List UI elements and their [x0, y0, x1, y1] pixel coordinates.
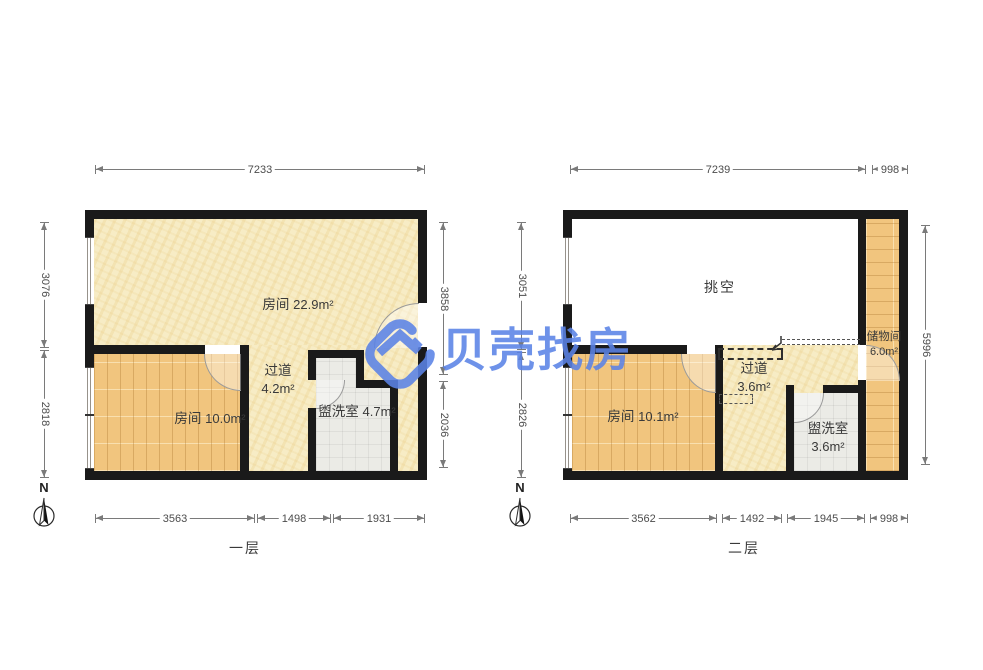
- room-area: 4.2m²: [261, 381, 294, 396]
- dimension: 2818: [39, 350, 50, 478]
- dimension: 1492: [722, 513, 782, 524]
- dimension: 3563: [95, 513, 255, 524]
- dimension-value: 3076: [39, 270, 51, 300]
- dimension-value: 1492: [737, 513, 767, 525]
- window: [563, 237, 572, 305]
- room-label-corridor: 过道 4.2m²: [249, 362, 307, 397]
- room-label-bedroom-2: 房间 10.0m²: [170, 410, 250, 428]
- dimension: 1498: [257, 513, 331, 524]
- wall-segment: [563, 471, 908, 480]
- dimension-value: 1498: [279, 513, 309, 525]
- room-name: 房间: [262, 297, 289, 312]
- wall-segment: [418, 347, 427, 471]
- room-label-bedroom: 房间 10.1m²: [603, 408, 683, 426]
- room-name: 盥洗室: [808, 421, 849, 436]
- wall-segment: [858, 219, 866, 345]
- window-mullion: [85, 414, 94, 416]
- wall-segment: [823, 385, 866, 393]
- dimension-value: 998: [877, 513, 901, 525]
- opening-dashed-box: [719, 394, 753, 404]
- wall-segment: [308, 408, 316, 471]
- room-label-corridor: 过道 3.6m²: [724, 360, 784, 395]
- room-label-bedroom-main: 房间 22.9m²: [258, 296, 338, 314]
- room-label-washroom: 盥洗室 4.7m²: [318, 403, 396, 421]
- dimension-value: 3562: [628, 513, 658, 525]
- dimension-value: 7233: [245, 164, 275, 176]
- dimension: 3858: [438, 222, 449, 375]
- dimension: 2826: [516, 352, 527, 478]
- dimension: 7239: [570, 164, 866, 175]
- dimension: 7233: [95, 164, 425, 175]
- stair-direction-arrow-icon: [768, 334, 784, 356]
- dimension-value: 5996: [920, 330, 932, 360]
- north-compass-icon: N: [27, 481, 61, 536]
- room-label-storage: 储物间 6.0m²: [855, 330, 913, 360]
- room-name: 过道: [741, 361, 768, 376]
- room-label-void: 挑空: [690, 278, 750, 296]
- dimension-value: 3051: [516, 271, 528, 301]
- room-label-washroom: 盥洗室 3.6m²: [790, 420, 866, 455]
- dimension-value: 3563: [160, 513, 190, 525]
- dimension: 998: [870, 513, 908, 524]
- north-label: N: [503, 481, 537, 494]
- window: [563, 367, 572, 469]
- dimension: 998: [872, 164, 908, 175]
- room-area: 4.7m²: [363, 404, 396, 419]
- dimension-value: 1931: [364, 513, 394, 525]
- floor-title: 二层: [712, 538, 776, 558]
- floorplan-image: 房间 22.9m² 房间 10.0m² 过道 4.2m² 盥洗室 4.7m² 7…: [0, 0, 983, 670]
- dimension-value: 3858: [438, 283, 450, 313]
- f1-main-room-floor: [94, 219, 418, 345]
- wall-segment: [563, 210, 908, 219]
- wall-segment: [240, 345, 249, 471]
- room-area: 10.0m²: [205, 411, 245, 426]
- room-name: 挑空: [704, 279, 736, 295]
- wall-segment: [715, 354, 723, 471]
- window: [85, 367, 94, 469]
- room-name: 房间: [607, 409, 634, 424]
- dimension: 3562: [570, 513, 717, 524]
- compass-needle-icon: [29, 495, 59, 531]
- room-name: 过道: [265, 363, 292, 378]
- dimension: 5996: [920, 225, 931, 465]
- room-area: 3.6m²: [737, 379, 770, 394]
- dimension-value: 7239: [703, 164, 733, 176]
- wall-segment: [786, 385, 794, 393]
- room-area: 3.6m²: [811, 439, 844, 454]
- dimension: 3051: [516, 222, 527, 350]
- dimension: 2036: [438, 381, 449, 468]
- room-name: 储物间: [867, 331, 902, 343]
- dimension: 3076: [39, 222, 50, 348]
- room-area: 10.1m²: [638, 409, 678, 424]
- wall-segment: [308, 350, 363, 358]
- dimension-value: 2036: [438, 409, 450, 439]
- wall-segment: [85, 345, 205, 354]
- wall-segment: [418, 210, 427, 303]
- wall-segment: [563, 345, 687, 354]
- dimension-value: 1945: [811, 513, 841, 525]
- north-label: N: [27, 481, 61, 494]
- dimension-value: 998: [878, 164, 902, 176]
- dimension-value: 2826: [516, 400, 528, 430]
- room-name: 房间: [174, 411, 201, 426]
- compass-needle-icon: [505, 495, 535, 531]
- window: [85, 237, 94, 305]
- room-name: 盥洗室: [318, 404, 359, 419]
- room-area: 6.0m²: [870, 346, 898, 358]
- dimension-value: 2818: [39, 399, 51, 429]
- opening-dashed-line: [782, 339, 860, 345]
- room-area: 22.9m²: [293, 297, 333, 312]
- window-mullion: [563, 414, 572, 416]
- north-compass-icon: N: [503, 481, 537, 536]
- dimension: 1945: [787, 513, 865, 524]
- wall-segment: [85, 210, 427, 219]
- floor-title: 一层: [213, 538, 277, 558]
- wall-segment: [85, 471, 427, 480]
- dimension: 1931: [333, 513, 425, 524]
- wall-segment: [390, 380, 398, 471]
